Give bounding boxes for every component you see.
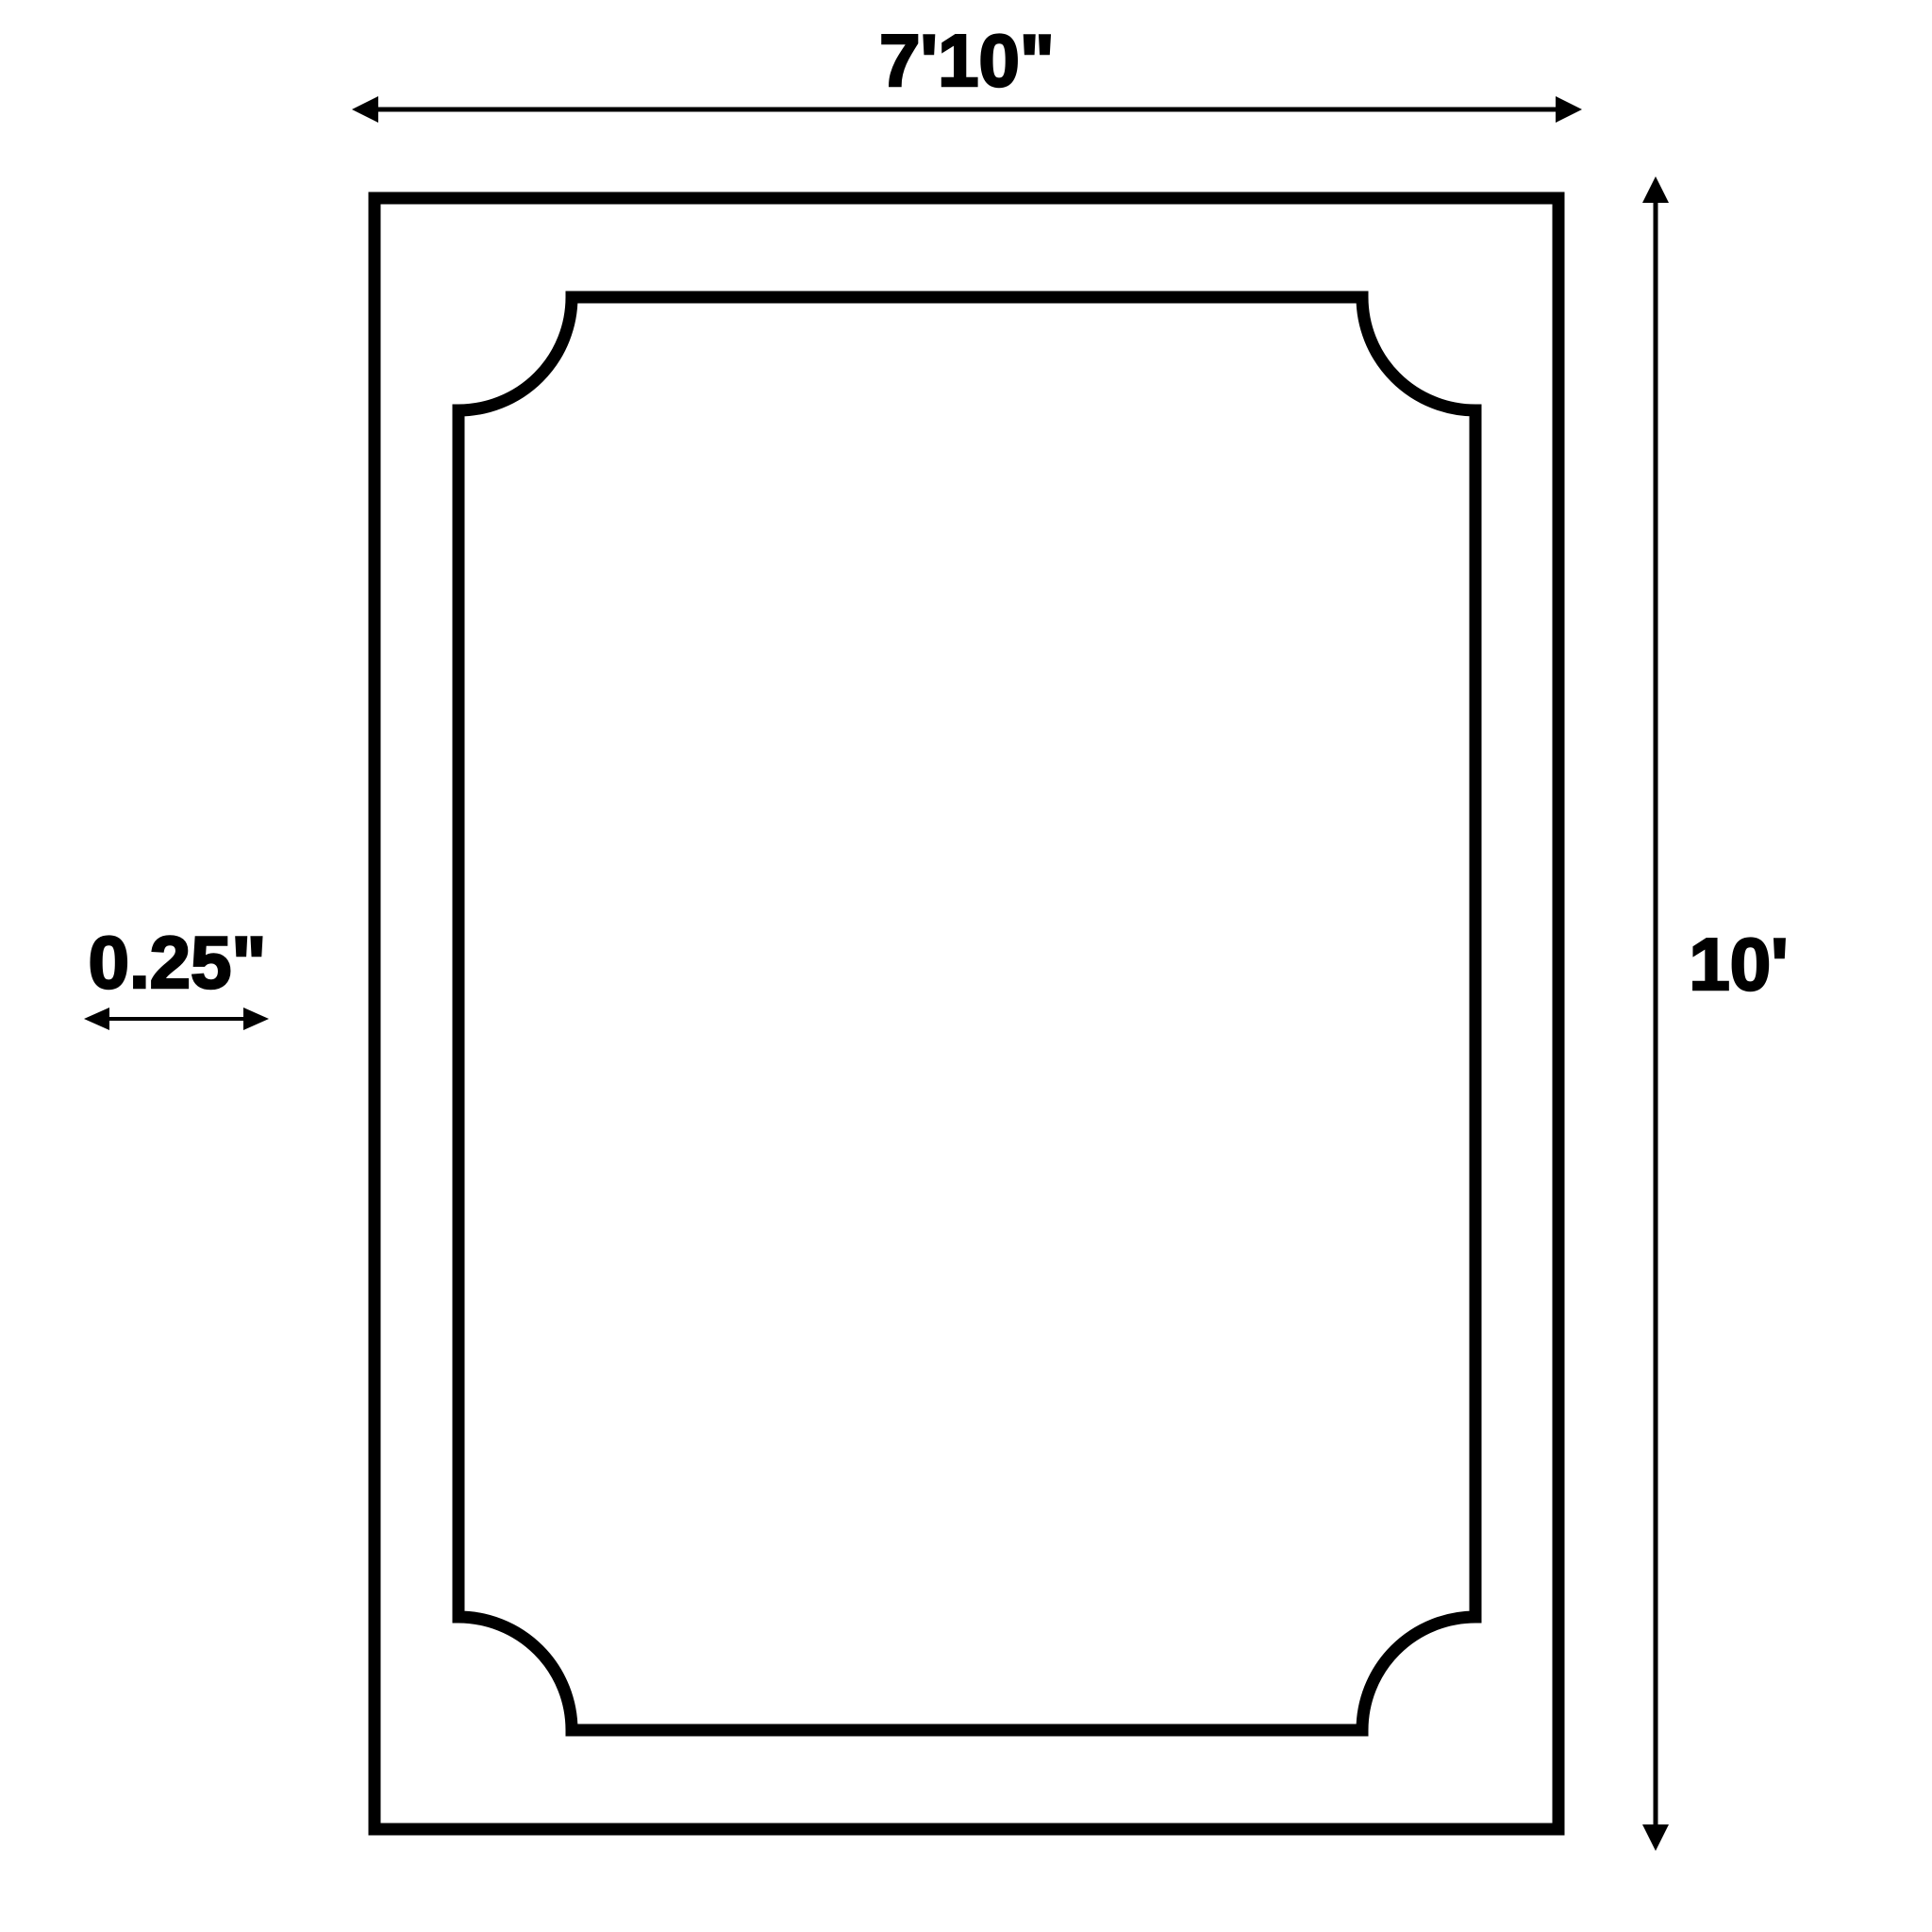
height-dimension-label: 10' <box>1689 927 1788 1001</box>
width-arrow-right-icon <box>1556 96 1582 123</box>
thickness-arrow-right-icon <box>243 1008 269 1030</box>
width-dimension-label: 7'10" <box>879 24 1055 97</box>
width-arrow-left-icon <box>352 96 378 123</box>
height-arrow-up-icon <box>1642 176 1669 203</box>
thickness-dimension <box>84 1008 269 1030</box>
thickness-dimension-label: 0.25" <box>89 925 267 999</box>
dimension-diagram: 7'10" 10' 0.25" <box>0 0 1932 1932</box>
thickness-arrow-left-icon <box>84 1008 109 1030</box>
height-arrow-down-icon <box>1642 1824 1669 1851</box>
inner-frame <box>458 297 1475 1730</box>
diagram-svg <box>0 0 1932 1932</box>
outer-rectangle <box>375 198 1558 1829</box>
height-dimension <box>1642 176 1669 1851</box>
